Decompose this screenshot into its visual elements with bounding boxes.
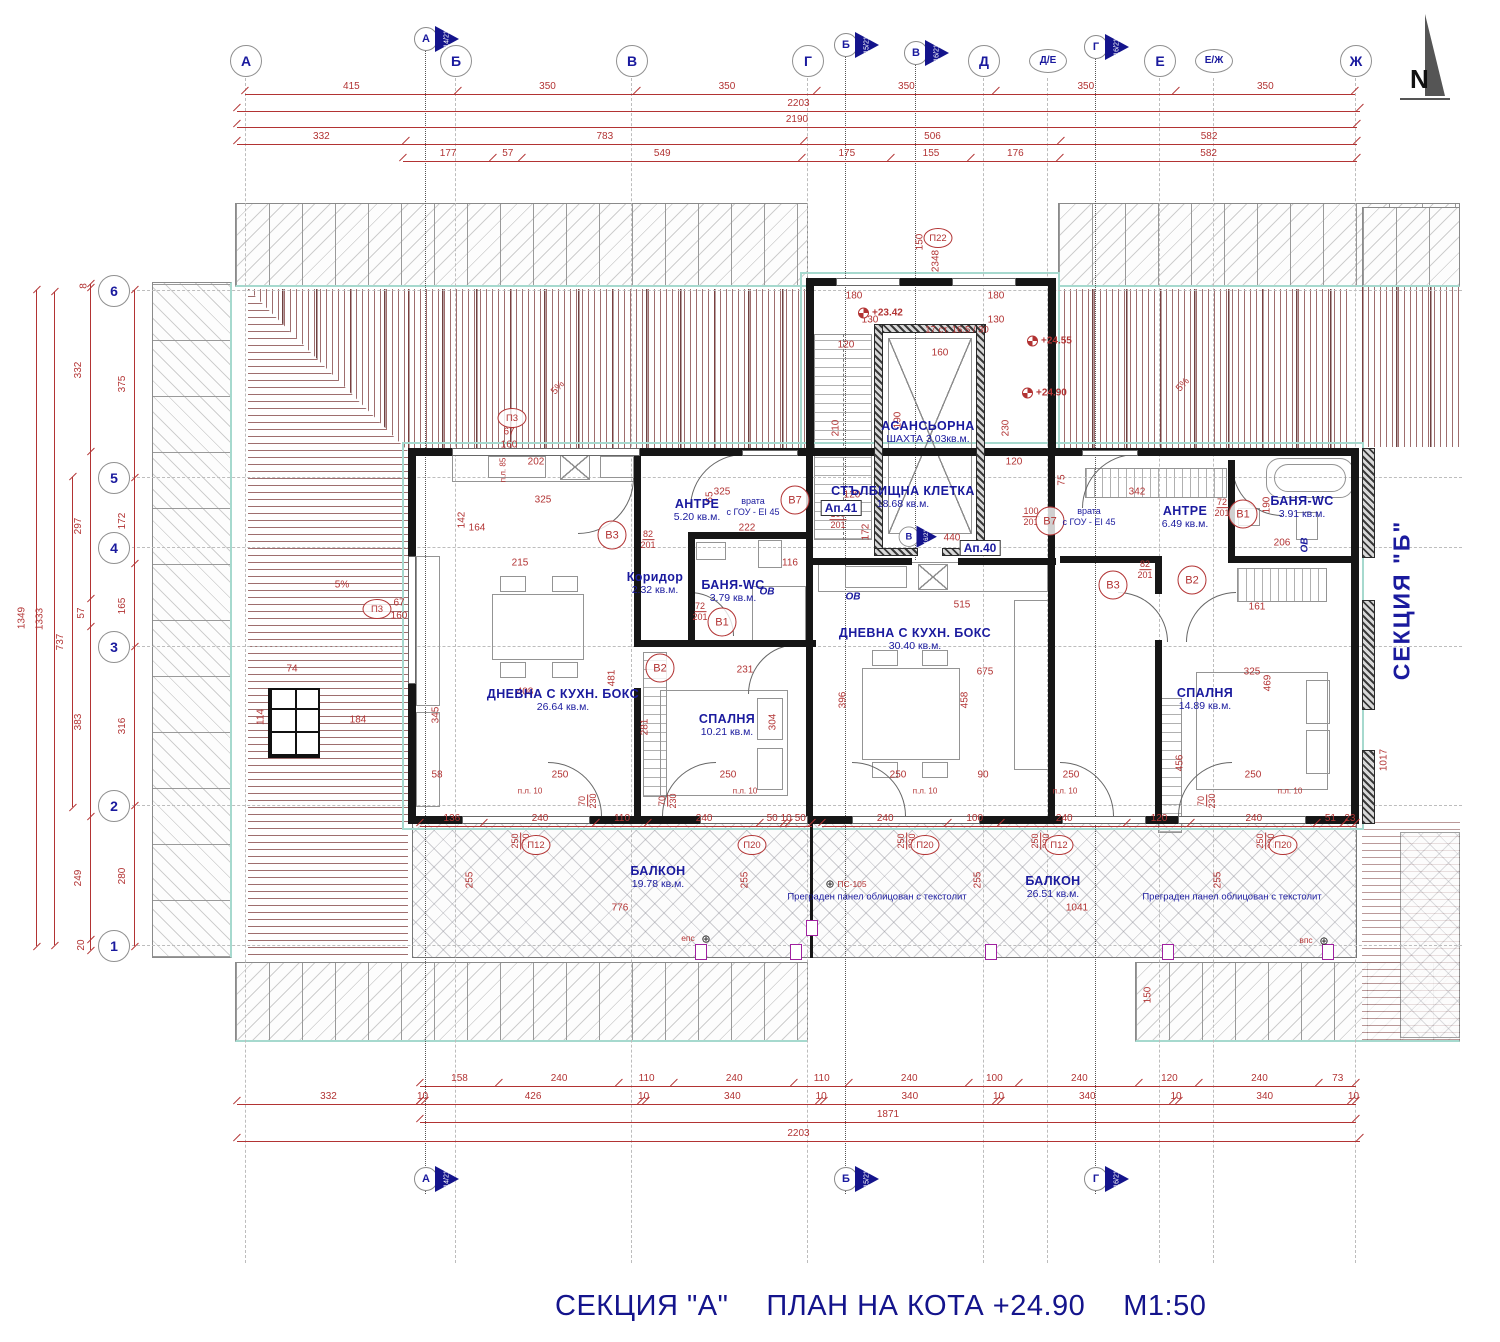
furniture: [1274, 464, 1346, 492]
dim-chain-balcony_right: 2401002401202405123: [822, 826, 1356, 827]
dim-fraction: 72201: [1214, 497, 1229, 519]
room-label-antre-l: АНТРЕ5.20 кв.м.: [674, 497, 721, 523]
wall: [1155, 640, 1162, 824]
furniture: [1306, 680, 1330, 724]
room-area: 26.51 кв.м.: [1025, 888, 1080, 900]
room-label-spalnia-r: СПАЛНЯ14.89 кв.м.: [1177, 686, 1233, 712]
window: [408, 556, 416, 684]
grid-bubble-row-2: 2: [98, 790, 130, 822]
furniture: [416, 556, 440, 706]
dim-label: 110: [814, 1073, 830, 1084]
dim-label: 136: [444, 813, 461, 824]
dim-label: 1871: [877, 1109, 899, 1120]
door-note-line: врата: [1063, 506, 1116, 517]
title-scale: М1:50: [1123, 1290, 1206, 1323]
grid-line-row: [132, 547, 1462, 548]
floor-plan-sheet: N СЕКЦИЯ "Б" СЕКЦИЯ "А" ПЛАН НА КОТА +24…: [0, 0, 1500, 1342]
room-label-bania-l: БАНЯ-WC3.79 кв.м.: [701, 578, 764, 604]
pl-label: п.л. 10: [1278, 787, 1303, 796]
frac-top: 250: [1255, 832, 1266, 849]
room-area: 10.21 кв.м.: [699, 726, 755, 738]
dim-label: 165: [117, 597, 128, 614]
dim-chain-top_total2: 2190: [237, 127, 1357, 128]
section-flag-ref: 16/21: [933, 44, 940, 62]
dim-label: 345: [431, 707, 442, 724]
section-flag-ref: 16/21: [1113, 1170, 1120, 1188]
dim-label: 396: [838, 692, 849, 709]
roof-glazing-bottom-left: [235, 962, 808, 1042]
dim-label: 250: [552, 770, 569, 781]
dim-label: 515: [954, 600, 971, 611]
marker-В3: В3: [1099, 571, 1128, 600]
dim-label: 100: [966, 813, 983, 824]
window: [1082, 450, 1138, 456]
dim-label: 240: [726, 1073, 743, 1084]
furniture: [416, 712, 440, 807]
frac-bottom: 201: [1137, 571, 1152, 581]
grid-bubble-col-Ж: Ж: [1340, 45, 1372, 77]
dim-label: 340: [901, 1091, 918, 1102]
apartment-label-40: Ап.40: [960, 540, 1001, 556]
marker-В1: В1: [708, 608, 737, 637]
roof-glazing-far-right: [1362, 207, 1460, 287]
partition-panel-note: Преграден панел облицован с текстолит: [1142, 892, 1321, 903]
dim-label: 20: [76, 939, 87, 950]
window: [1062, 816, 1146, 824]
dim-chain-balcony_left: 136240110240501050: [420, 826, 812, 827]
dim-label: 458: [960, 692, 971, 709]
dim-label: 240: [901, 1073, 918, 1084]
level-mark: +24.55: [1027, 336, 1072, 347]
stair-steps-note: 17 ст. 16.5 / 30: [925, 325, 989, 336]
furniture: [862, 668, 960, 760]
dim-label: 73: [1332, 1073, 1343, 1084]
room-label-dnevna-m: ДНЕВНА С КУХН. БОКС30.40 кв.м.: [839, 626, 991, 652]
wall-hatched: [976, 324, 985, 556]
room-label-balkon-r: БАЛКОН26.51 кв.м.: [1025, 874, 1080, 900]
door-note-line: с ГОУ - EI 45: [1063, 517, 1116, 528]
roof-plane-top-left: [408, 289, 808, 449]
dim-fraction: 70230: [577, 793, 599, 808]
dim-label: 481: [607, 670, 618, 687]
marker-П12: П12: [522, 835, 551, 855]
dim-label: 50: [795, 813, 806, 824]
section-flag-ref: 14/21: [443, 1170, 450, 1188]
room-name: БАНЯ-WC: [701, 578, 764, 592]
dim-label: 776: [612, 903, 629, 914]
dim-label: 240: [1245, 813, 1262, 824]
roof-plane-top-right: [1058, 289, 1352, 449]
dim-label: 250: [890, 770, 907, 781]
dim-label: 582: [1200, 148, 1217, 159]
balcony-post: [695, 944, 707, 960]
marker-В3: В3: [598, 521, 627, 550]
furniture: [500, 576, 526, 592]
section-flag-ref: 14/21: [443, 30, 450, 48]
window: [836, 278, 900, 286]
wall: [1351, 448, 1359, 824]
furniture: [922, 650, 948, 666]
balcony-partition: [810, 822, 813, 958]
furniture: [758, 540, 782, 568]
grid-bubble-row-3: 3: [98, 631, 130, 663]
balcony-deck: [412, 822, 1357, 958]
room-name: АНТРЕ: [674, 497, 721, 511]
furniture: [696, 542, 726, 560]
frac-top: 82: [642, 529, 654, 540]
dim-label: 100: [986, 1073, 1003, 1084]
window: [852, 816, 980, 824]
section-flag-ref: 16/21: [1113, 38, 1120, 56]
section-flag-ref: 15/21: [863, 1170, 870, 1188]
balcony-post: [1162, 944, 1174, 960]
dim-label: 506: [924, 131, 941, 142]
frac-bottom: 201: [1214, 509, 1229, 519]
dim-label: 249: [73, 870, 84, 887]
dim-label: 120: [838, 340, 855, 351]
dim-label: 350: [898, 81, 915, 92]
dim-label: 57: [76, 608, 87, 619]
dim-label: 737: [55, 634, 66, 651]
eps-symbol-icon: ⊕: [701, 933, 710, 946]
north-arrow-base: [1400, 98, 1450, 100]
furniture: [845, 566, 907, 588]
frac-bottom: 230: [669, 793, 679, 808]
dim-label: 160: [932, 348, 949, 359]
dim-label: 255: [740, 872, 751, 889]
dim-label: 675: [977, 667, 994, 678]
balcony-post: [790, 944, 802, 960]
dim-label: 240: [1056, 813, 1073, 824]
hvac-label: ОВ: [760, 587, 775, 598]
dim-label: 180: [988, 291, 1005, 302]
dim-fraction: 82201: [1137, 559, 1152, 581]
apartment-label-41: Ап.41: [821, 500, 862, 516]
ps-symbol-icon: ⊕: [825, 878, 834, 891]
dim-label: 350: [539, 81, 556, 92]
ps-105-label: ПС-105: [837, 879, 866, 889]
section-flag-А: А14/21: [414, 1166, 459, 1192]
window: [952, 278, 1016, 286]
dim-label: 440: [944, 533, 961, 544]
marker-П20: П20: [911, 835, 940, 855]
dim-chain-left2: 375172165316280: [134, 290, 135, 946]
marker-В2: В2: [1178, 566, 1207, 595]
frac-top: 250: [896, 832, 907, 849]
dim-label: 250: [720, 770, 737, 781]
dim-label: 130: [988, 315, 1005, 326]
room-name: БАНЯ-WC: [1270, 494, 1333, 508]
dim-label: 23: [1344, 813, 1355, 824]
room-name: БАЛКОН: [1025, 874, 1080, 888]
room-area: 19.78 кв.м.: [630, 878, 685, 890]
roof-glazing-left-strip: [152, 282, 232, 958]
grid-bubble-row-1: 1: [98, 930, 130, 962]
wall: [634, 448, 641, 534]
dim-label: 215: [512, 558, 529, 569]
balcony-post: [806, 920, 818, 936]
dim-label: 231: [737, 665, 754, 676]
room-area: ШАХТА 3.03кв.м.: [881, 433, 974, 445]
wall: [958, 558, 1056, 565]
wall-hatched: [874, 548, 918, 556]
marker-В2: В2: [646, 654, 675, 683]
level-value: +24.90: [1036, 388, 1067, 399]
dim-label: 350: [1078, 81, 1095, 92]
room-label-dnevna-l: ДНЕВНА С КУХН. БОКС26.64 кв.м.: [487, 687, 639, 713]
dim-label: 110: [639, 1073, 655, 1084]
roof-glazing-top-left: [235, 203, 808, 287]
room-name: АСАНСЬОРНА: [881, 419, 974, 433]
dim-label: 120: [1161, 1073, 1178, 1084]
dim-chain-bottom2: 104261034010340103401034010: [420, 1104, 1356, 1105]
frac-top: 250: [510, 832, 521, 849]
wall-hatched: [1362, 448, 1375, 558]
dim-label: 240: [877, 813, 894, 824]
grid-bubble-col-Е: Е: [1144, 45, 1176, 77]
dim-label: 142: [457, 512, 468, 529]
grid-bubble-row-6: 6: [98, 275, 130, 307]
grid-bubble-col-А: А: [230, 45, 262, 77]
frac-top: 70: [1196, 795, 1207, 807]
furniture: [552, 662, 578, 678]
dim-label: 74: [286, 664, 297, 675]
dim-label: 155: [923, 148, 940, 159]
dim-label: 210: [831, 420, 842, 437]
dim-label: 783: [596, 131, 613, 142]
dim-label: 120: [1006, 457, 1023, 468]
frac-bottom: 201: [692, 613, 707, 623]
section-flag-А: А14/21: [414, 26, 459, 52]
grid-bubble-row-4: 4: [98, 532, 130, 564]
hvac-label: ОВ: [1300, 538, 1311, 553]
room-area: 6.49 кв.м.: [1162, 518, 1209, 530]
north-arrow: N: [1398, 14, 1452, 114]
wall: [806, 278, 814, 456]
section-b-label: СЕКЦИЯ "Б": [1389, 520, 1416, 681]
dim-chain-top1: 415350350350350350: [245, 94, 1355, 95]
pl-label: п.л. 10: [733, 787, 758, 796]
grid-bubble-row-5: 5: [98, 462, 130, 494]
dim-label: 120: [1151, 813, 1168, 824]
dim-label: 177: [440, 148, 457, 159]
frac-bottom: 230: [589, 793, 599, 808]
grid-bubble-col-Г: Г: [792, 45, 824, 77]
dim-label: 240: [1251, 1073, 1268, 1084]
dim-label: 90: [977, 770, 988, 781]
dim-chain-top2: 332783506582: [237, 144, 1357, 145]
frac-top: 250: [1030, 832, 1041, 849]
dim-fraction: 72201: [692, 601, 707, 623]
furniture: [757, 748, 783, 790]
room-name: Коридор: [627, 570, 684, 584]
dim-label: 255: [973, 872, 984, 889]
title-section: СЕКЦИЯ "А": [555, 1290, 728, 1323]
dim-label: 2190: [786, 114, 808, 125]
section-flag-Б: Б15/21: [834, 32, 879, 58]
room-name: СТЪЛБИЩНА КЛЕТКА: [831, 484, 975, 498]
vps-symbol-icon: ⊕: [1319, 935, 1328, 948]
dim-label: 332: [313, 131, 330, 142]
room-name: ДНЕВНА С КУХН. БОКС: [839, 626, 991, 640]
dim-label: 297: [73, 517, 84, 534]
dim-chain-bottom_total2: 2203: [237, 1141, 1360, 1142]
room-area: 3.79 кв.м.: [701, 592, 764, 604]
dim-label: 10: [1348, 1091, 1359, 1102]
marker-П20: П20: [738, 835, 767, 855]
dim-label: 184: [350, 715, 367, 726]
section-flag-В: В16/21: [904, 40, 949, 66]
level-value: +24.55: [1041, 336, 1072, 347]
furniture: [872, 650, 898, 666]
wall: [812, 558, 912, 565]
dim-label: 51: [1325, 813, 1336, 824]
dim-label: 175: [839, 148, 856, 159]
dim-label: 67: [503, 427, 514, 438]
section-flag-Г: Г16/21: [1084, 34, 1129, 60]
furniture: [600, 456, 634, 478]
wall: [634, 640, 816, 647]
dim-chain-bottom_left: 332: [237, 1104, 420, 1105]
level-symbol-icon: [858, 308, 869, 319]
dim-label: 2203: [787, 98, 809, 109]
section-flag-Г: Г16/21: [1084, 1166, 1129, 1192]
dim-label: 50: [767, 813, 778, 824]
room-label-spalnia-l: СПАЛНЯ10.21 кв.м.: [699, 712, 755, 738]
pl-85-label: п.л. 85: [499, 458, 508, 483]
dim-label: 426: [525, 1091, 542, 1102]
pl-label: п.л. 10: [1053, 787, 1078, 796]
dim-label: 350: [1257, 81, 1274, 92]
dim-fraction: 82201: [640, 529, 655, 551]
furniture: [560, 454, 590, 480]
north-label: N: [1410, 64, 1429, 95]
dim-label: 456: [1175, 755, 1186, 772]
dim-label: 158: [451, 1073, 468, 1084]
section-flag-Б: Б15/21: [834, 1166, 879, 1192]
room-name: СПАЛНЯ: [1177, 686, 1233, 700]
room-area: 2.32 кв.м.: [627, 584, 684, 596]
dim-label: 160: [501, 440, 518, 451]
marker-П20: П20: [1269, 835, 1298, 855]
wall: [1155, 556, 1162, 594]
room-area: 14.89 кв.м.: [1177, 700, 1233, 712]
door-fire-note: вратас ГОУ - EI 45: [727, 496, 780, 518]
dim-label: 206: [1274, 538, 1291, 549]
grid-bubble-col-В: В: [616, 45, 648, 77]
dim-label: 469: [1263, 675, 1274, 692]
dim-label: 1349: [16, 607, 27, 629]
dim-label: 240: [551, 1073, 568, 1084]
dim-label: 383: [73, 714, 84, 731]
dim-label: 110: [614, 813, 630, 824]
furniture: [500, 662, 526, 678]
frac-bottom: 230: [1208, 793, 1218, 808]
dim-label: 240: [1071, 1073, 1088, 1084]
dim-label: 164: [469, 523, 486, 534]
dim-label: 1017: [1379, 749, 1390, 771]
door-fire-note: вратас ГОУ - EI 45: [1063, 506, 1116, 528]
level-value: +23.42: [872, 308, 903, 319]
marker-В7: В7: [781, 486, 810, 515]
dim-label: 180: [846, 291, 863, 302]
roof-plane-far-right: [1362, 287, 1460, 447]
dim-label: 325: [535, 495, 552, 506]
dim-label: 255: [465, 872, 476, 889]
marker-В7: В7: [1036, 507, 1065, 536]
marker-П22: П22: [924, 228, 953, 248]
balcony-post: [985, 944, 997, 960]
dim-label: 57: [502, 148, 513, 159]
hvac-label: ОВ: [846, 592, 861, 603]
dim-label: 240: [532, 813, 549, 824]
dim-chain-top_total: 2203: [237, 111, 1360, 112]
dim-label: 222: [739, 523, 756, 534]
pl-label: п.л. 10: [913, 787, 938, 796]
dim-label: 240: [696, 813, 713, 824]
dim-label: 58: [431, 770, 442, 781]
room-area: 30.40 кв.м.: [839, 640, 991, 652]
dim-label: 161: [1249, 602, 1266, 613]
section-cut-line: [1095, 48, 1096, 1194]
dim-label: 176: [1007, 148, 1024, 159]
wall: [688, 532, 695, 642]
room-label-antre-r: АНТРЕ6.49 кв.м.: [1162, 504, 1209, 530]
frac-top: 82: [1139, 559, 1151, 570]
wall: [1228, 556, 1356, 563]
dim-label: 280: [117, 867, 128, 884]
marker-П3: П3: [498, 408, 527, 428]
dim-label: 1333: [34, 607, 45, 629]
room-label-balkon-l: БАЛКОН19.78 кв.м.: [630, 864, 685, 890]
room-area: 26.64 кв.м.: [487, 701, 639, 713]
section-flag-В: В16/21: [899, 526, 937, 548]
dim-label: 172: [861, 524, 872, 541]
dim-label: 250: [1245, 770, 1262, 781]
grid-line-col: [245, 78, 246, 1263]
pl-label: п.л. 10: [518, 787, 543, 796]
dim-label: 350: [719, 81, 736, 92]
dim-label: 415: [343, 81, 360, 92]
dim-label: 2348: [931, 250, 942, 272]
dim-chain-bottom1: 15824011024011024010024012024073: [420, 1086, 1356, 1087]
dim-label: 340: [1256, 1091, 1273, 1102]
dim-label: 75: [1057, 474, 1068, 485]
room-name: БАЛКОН: [630, 864, 685, 878]
furniture: [922, 762, 948, 778]
vps-label: впс: [1299, 935, 1312, 945]
dim-chain-bottom_total: 1871: [420, 1122, 1356, 1123]
dim-chain-left_total2: 1333: [54, 292, 55, 945]
furniture: [1014, 600, 1052, 770]
dim-label: 342: [1129, 487, 1146, 498]
dim-label: 230: [1001, 420, 1012, 437]
eps-label: епс: [681, 933, 695, 943]
dim-label: 375: [117, 376, 128, 393]
room-name: АНТРЕ: [1162, 504, 1209, 518]
section-cut-line: [845, 50, 846, 1194]
room-label-koridor: Коридор2.32 кв.м.: [627, 570, 684, 596]
marker-П12: П12: [1045, 835, 1074, 855]
grid-bubble-col-Д: Д: [968, 45, 1000, 77]
dim-label: 549: [654, 148, 671, 159]
dim-label: 332: [73, 362, 84, 379]
section-flag-ref: 15/21: [863, 36, 870, 54]
furniture: [552, 576, 578, 592]
dim-label: 114: [256, 709, 267, 725]
room-name: ДНЕВНА С КУХН. БОКС: [487, 687, 639, 701]
door-note-line: врата: [727, 496, 780, 507]
